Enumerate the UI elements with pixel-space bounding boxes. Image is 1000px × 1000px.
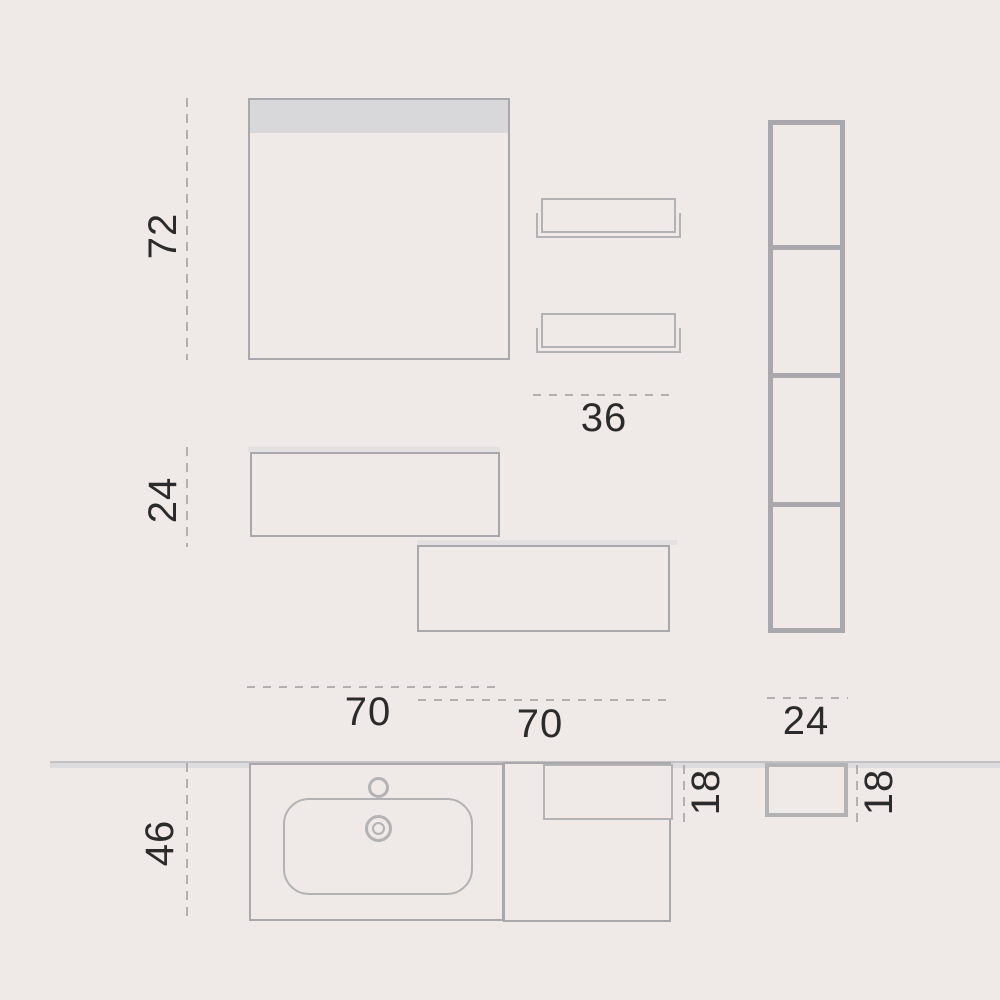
- wall-cabinet-upper: [250, 452, 500, 537]
- column-shelf-divider: [772, 502, 841, 507]
- drain-outer: [365, 815, 392, 842]
- dim-line-side-cabinet-width: [418, 699, 672, 701]
- side-cabinet-shelf-plan: [543, 764, 673, 820]
- vanity-plan: [249, 763, 504, 921]
- dimension-label-vanity-depth: 46: [140, 820, 180, 867]
- column-shelf-divider: [772, 245, 841, 250]
- dimension-label-column-width: 24: [783, 701, 830, 741]
- shelf-face: [541, 198, 676, 233]
- column-plan: [765, 763, 848, 817]
- dimension-label-side-shelf-depth: 18: [686, 769, 726, 816]
- wall-shelf-lower: [536, 313, 681, 354]
- dim-line-vanity-width: [247, 686, 502, 688]
- mirror: [248, 98, 510, 360]
- dim-line-cabinet-height: [186, 447, 188, 547]
- mirror-top-band: [250, 100, 508, 133]
- diagram-canvas: 72 24 46 36 70 70 24 18 18: [0, 0, 1000, 1000]
- dim-line-vanity-depth: [186, 763, 188, 922]
- basin: [283, 798, 473, 895]
- wall-cabinet-lower: [417, 545, 670, 632]
- wall-shelf-upper: [536, 198, 681, 239]
- dimension-label-shelf-width: 36: [581, 398, 628, 438]
- dimension-label-wall-cabinet-height: 24: [143, 477, 183, 524]
- dimension-label-side-cabinet-width: 70: [517, 704, 564, 744]
- dim-line-mirror-height: [186, 98, 188, 360]
- shelf-face: [541, 313, 676, 348]
- dimension-label-column-depth: 18: [859, 769, 899, 816]
- drain-inner: [372, 822, 385, 835]
- dimension-label-vanity-width: 70: [345, 692, 392, 732]
- dimension-label-mirror-height: 72: [143, 213, 183, 260]
- tall-column-unit: [768, 120, 845, 633]
- column-shelf-divider: [772, 373, 841, 378]
- faucet-hole: [368, 777, 389, 798]
- side-cabinet-plan: [503, 762, 671, 922]
